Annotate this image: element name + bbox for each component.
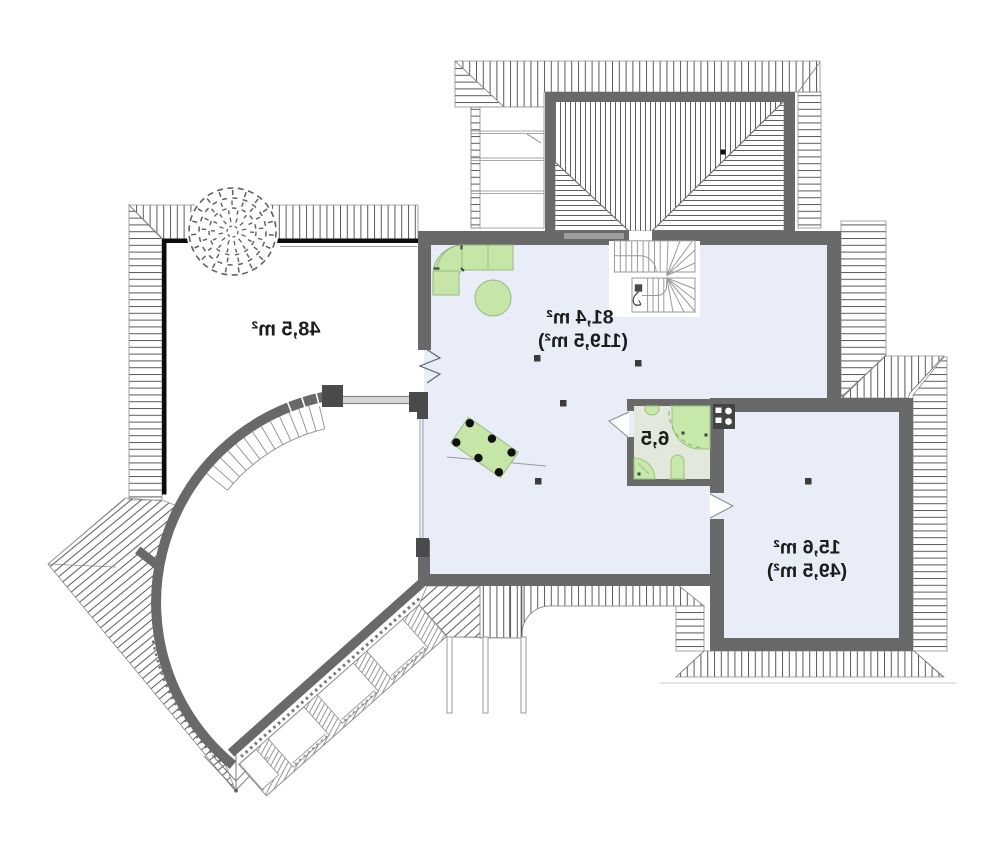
svg-text:15,6 m²: 15,6 m² xyxy=(773,537,841,559)
svg-text:81,4 m²: 81,4 m² xyxy=(546,307,614,329)
svg-text:6,5: 6,5 xyxy=(641,427,670,450)
svg-text:48,5 m²: 48,5 m² xyxy=(251,319,320,341)
svg-text:(119,5 m²): (119,5 m²) xyxy=(538,330,628,352)
svg-text:(49,5 m²): (49,5 m²) xyxy=(767,560,847,582)
